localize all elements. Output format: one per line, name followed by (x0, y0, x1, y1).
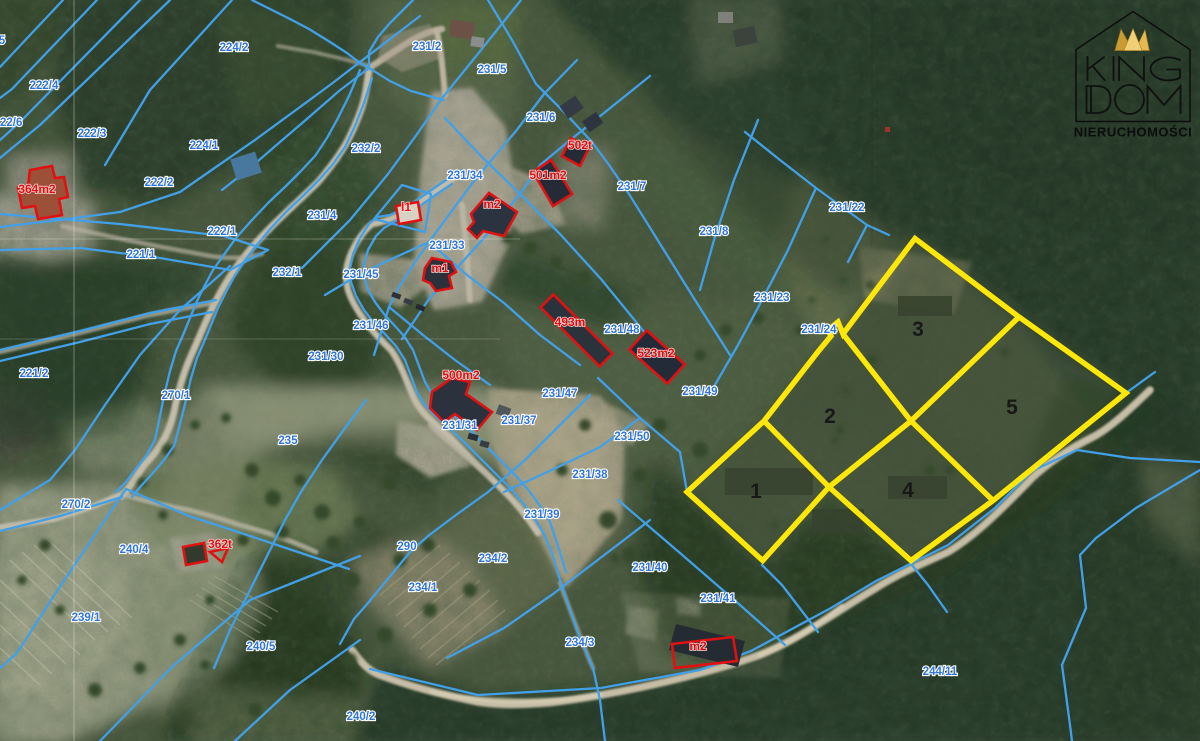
svg-text:240/2: 240/2 (347, 711, 376, 723)
svg-text:221/1: 221/1 (127, 249, 156, 261)
svg-text:2: 2 (824, 405, 836, 428)
svg-text:362t: 362t (208, 537, 232, 551)
svg-text:364m2: 364m2 (18, 182, 56, 196)
svg-text:231/23: 231/23 (754, 292, 789, 304)
svg-text:222/6: 222/6 (0, 117, 22, 129)
svg-text:231/22: 231/22 (829, 202, 864, 214)
svg-text:5: 5 (0, 35, 6, 47)
svg-text:1: 1 (750, 480, 762, 503)
svg-text:231/39: 231/39 (524, 509, 559, 521)
svg-text:234/3: 234/3 (566, 637, 595, 649)
svg-text:231/47: 231/47 (542, 388, 577, 400)
svg-text:NIERUCHOMOŚCI: NIERUCHOMOŚCI (1074, 125, 1192, 140)
svg-text:500m2: 500m2 (442, 368, 480, 382)
svg-text:m1: m1 (431, 261, 449, 275)
svg-text:231/46: 231/46 (353, 320, 388, 332)
svg-text:231/41: 231/41 (700, 593, 736, 605)
svg-text:231/2: 231/2 (413, 41, 442, 53)
svg-text:231/7: 231/7 (618, 181, 647, 193)
svg-text:231/24: 231/24 (801, 324, 837, 336)
svg-text:231/6: 231/6 (527, 112, 556, 124)
svg-text:231/4: 231/4 (308, 210, 337, 222)
svg-text:270/1: 270/1 (162, 390, 191, 402)
svg-text:232/1: 232/1 (273, 267, 302, 279)
svg-text:231/30: 231/30 (308, 351, 343, 363)
svg-text:4: 4 (902, 479, 914, 502)
svg-text:231/48: 231/48 (604, 324, 640, 336)
svg-text:m2: m2 (483, 197, 501, 211)
svg-text:222/2: 222/2 (145, 177, 174, 189)
svg-text:222/4: 222/4 (30, 80, 59, 92)
svg-text:231/45: 231/45 (343, 269, 379, 281)
svg-text:231/8: 231/8 (700, 226, 729, 238)
svg-text:232/2: 232/2 (352, 143, 381, 155)
svg-text:501m2: 501m2 (529, 168, 567, 182)
svg-text:231/34: 231/34 (447, 170, 483, 182)
svg-text:235: 235 (278, 435, 298, 447)
svg-text:231/37: 231/37 (501, 415, 536, 427)
svg-text:231/31: 231/31 (442, 420, 478, 432)
svg-text:231/38: 231/38 (572, 469, 608, 481)
svg-text:221/2: 221/2 (20, 368, 49, 380)
svg-text:239/1: 239/1 (72, 612, 101, 624)
svg-text:231/33: 231/33 (429, 240, 464, 252)
svg-text:502t: 502t (568, 138, 592, 152)
svg-text:270/2: 270/2 (62, 499, 91, 511)
svg-text:493m: 493m (555, 315, 586, 329)
svg-text:523m2: 523m2 (637, 346, 675, 360)
svg-text:222/1: 222/1 (208, 226, 237, 238)
svg-text:240/4: 240/4 (120, 544, 149, 556)
svg-text:240/5: 240/5 (247, 641, 276, 653)
svg-text:3: 3 (912, 318, 924, 341)
svg-text:290: 290 (397, 541, 416, 553)
svg-text:231/5: 231/5 (478, 64, 507, 76)
svg-text:224/1: 224/1 (190, 140, 219, 152)
svg-text:231/50: 231/50 (614, 431, 649, 443)
svg-text:m2: m2 (689, 639, 707, 653)
svg-text:224/2: 224/2 (220, 42, 249, 54)
svg-text:234/2: 234/2 (479, 553, 508, 565)
svg-text:231/49: 231/49 (682, 386, 717, 398)
svg-text:l1: l1 (401, 200, 411, 214)
svg-text:5: 5 (1006, 396, 1018, 419)
svg-text:244/11: 244/11 (923, 666, 958, 678)
svg-text:231/40: 231/40 (632, 562, 667, 574)
svg-text:222/3: 222/3 (78, 128, 107, 140)
svg-text:234/1: 234/1 (409, 582, 438, 594)
